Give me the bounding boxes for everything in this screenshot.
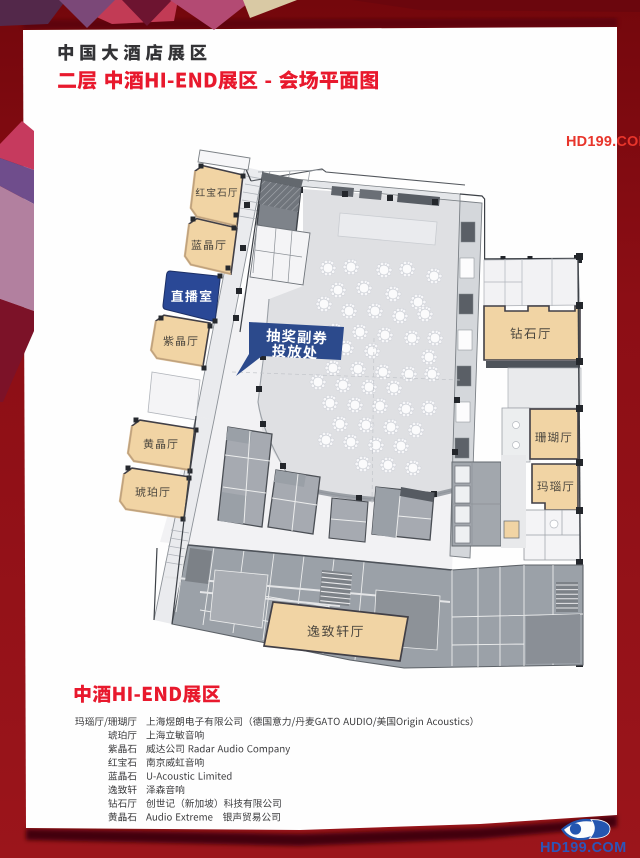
svg-text:HD199.COM: HD199.COM [540,840,627,856]
svg-text:HD199.COM: HD199.COM [566,134,640,150]
